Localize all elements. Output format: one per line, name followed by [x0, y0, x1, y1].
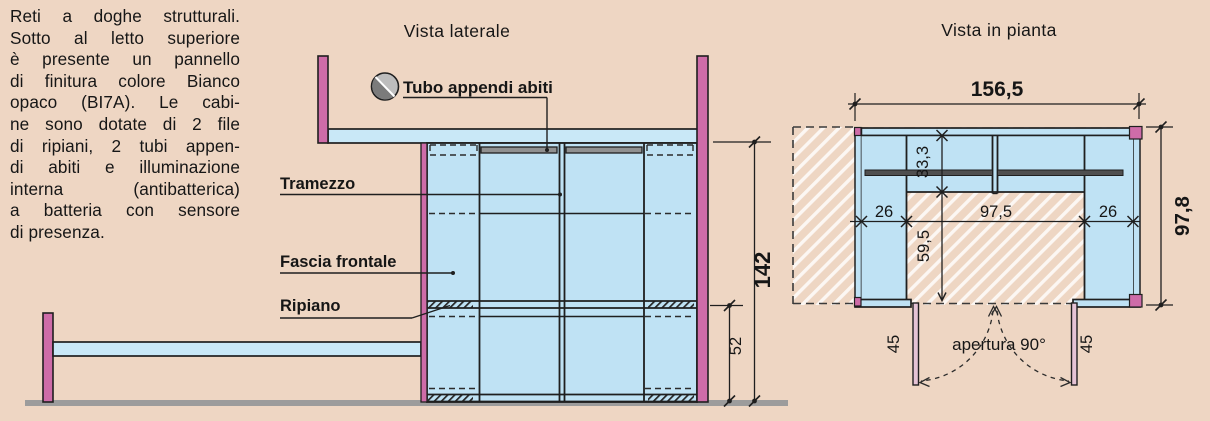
plan-corner-post — [1130, 127, 1143, 140]
technical-drawing: Vista laterale — [0, 0, 1210, 421]
plan-corner-post — [855, 298, 862, 307]
dim-left-column-value: 26 — [875, 203, 893, 221]
partition-label: Tramezzo — [280, 175, 355, 193]
lower-bed-rail — [53, 342, 421, 356]
dim-total-depth: 97,8 — [1146, 122, 1194, 311]
wardrobe-side-body — [427, 143, 697, 402]
dim-total-depth-value: 97,8 — [1171, 196, 1194, 236]
side-view-title: Vista laterale — [404, 21, 510, 41]
plan-view: Vista in pianta — [793, 20, 1194, 387]
spec-sheet-page: { "description": { "lines": [ "Reti a do… — [0, 0, 1210, 421]
side-view: Vista laterale — [25, 21, 788, 407]
dim-right-column-value: 26 — [1099, 203, 1117, 221]
plan-door-left — [913, 303, 919, 385]
upper-bed-post-right — [697, 56, 708, 402]
dim-shelf-depth-value: 33,3 — [914, 146, 932, 178]
dim-total-height: 142 — [713, 137, 775, 407]
dim-door-left-value: 45 — [885, 335, 903, 353]
plan-back-wall — [855, 128, 1140, 136]
plan-view-title: Vista in pianta — [941, 20, 1057, 40]
opening-annotation: apertura 90° — [952, 335, 1046, 354]
plan-hanging-tube-right — [998, 170, 1124, 176]
hanging-tube-right — [566, 147, 642, 153]
upper-bed-platform — [328, 129, 699, 143]
plan-door-right — [1072, 303, 1078, 385]
partition-leader-dot — [558, 193, 562, 197]
front-band-leader-dot — [451, 271, 455, 275]
dim-center-span-value: 97,5 — [980, 203, 1012, 221]
tube-label: Tubo appendi abiti — [403, 78, 553, 97]
tube-leader-dot — [545, 148, 549, 152]
dim-shelf-height-value: 52 — [727, 337, 745, 355]
dim-total-width: 156,5 — [848, 78, 1146, 121]
dim-front-depth-value: 59,5 — [915, 230, 933, 262]
dim-total-height-value: 142 — [750, 252, 775, 289]
shelf-hatch — [648, 395, 694, 402]
shelf-hatch — [428, 395, 473, 402]
dim-shelf-height: 52 — [710, 300, 745, 407]
shelf-hatch — [648, 301, 694, 308]
upper-bed-post-left — [318, 56, 328, 143]
dim-total-width-value: 156,5 — [971, 78, 1024, 101]
lower-bed-post — [43, 313, 53, 402]
shelf-label: Ripiano — [280, 297, 341, 315]
shelf-hatch — [428, 301, 473, 308]
plan-corner-post — [855, 128, 862, 136]
plan-front-wall-left — [855, 300, 911, 308]
front-band-label: Fascia frontale — [280, 253, 396, 271]
dim-door-right-value: 45 — [1078, 335, 1096, 353]
plan-corner-post — [1130, 295, 1143, 308]
